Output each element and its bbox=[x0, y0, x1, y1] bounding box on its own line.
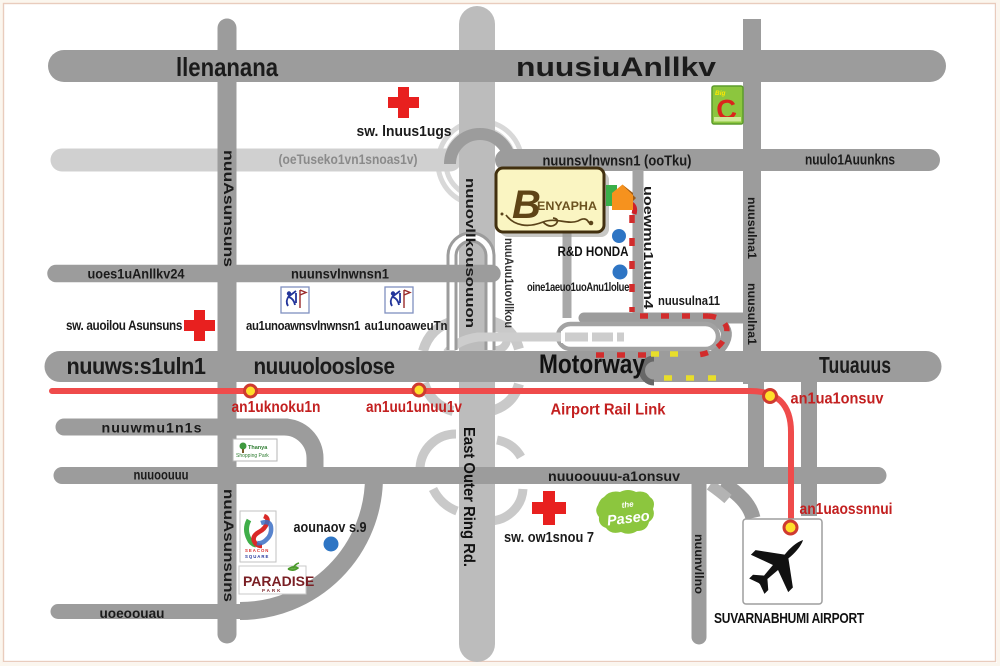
svg-text:nuuAuu1uovllkou: nuuAuu1uovllkou bbox=[502, 238, 514, 328]
svg-text:an1uaossnnui: an1uaossnnui bbox=[800, 501, 893, 518]
svg-text:nuuws:s1uln1: nuuws:s1uln1 bbox=[67, 353, 207, 379]
svg-text:(oeTuseko1vn1snoas1v): (oeTuseko1vn1snoas1v) bbox=[279, 152, 418, 167]
svg-text:Airport Rail Link: Airport Rail Link bbox=[551, 402, 666, 419]
svg-text:nuusulna11: nuusulna11 bbox=[658, 293, 720, 308]
svg-text:PARADISE: PARADISE bbox=[243, 573, 314, 589]
svg-text:sw. lnuus1ugs: sw. lnuus1ugs bbox=[357, 123, 452, 140]
svg-text:Tuuauus: Tuuauus bbox=[819, 352, 891, 378]
svg-text:au1unoaweuTn: au1unoaweuTn bbox=[365, 319, 448, 333]
svg-text:nuunsvlnwnsn1 (ooTku): nuunsvlnwnsn1 (ooTku) bbox=[543, 153, 692, 170]
svg-text:aounaov s.9: aounaov s.9 bbox=[294, 519, 367, 536]
svg-text:nuuuolooslose: nuuuolooslose bbox=[254, 353, 395, 379]
svg-text:Motorway: Motorway bbox=[539, 349, 645, 379]
svg-text:an1uu1unuu1v: an1uu1unuu1v bbox=[366, 399, 462, 416]
svg-text:nuuoouuu: nuuoouuu bbox=[134, 467, 189, 483]
svg-text:an1ua1onsuv: an1ua1onsuv bbox=[791, 391, 884, 408]
svg-text:nuuovllkousouuon: nuuovllkousouuon bbox=[463, 178, 478, 328]
svg-text:SUVARNABHUMI AIRPORT: SUVARNABHUMI AIRPORT bbox=[714, 610, 864, 627]
svg-text:SQUARE: SQUARE bbox=[245, 554, 269, 559]
svg-text:nuuoouuu-a1onsuv: nuuoouuu-a1onsuv bbox=[548, 468, 680, 484]
svg-text:nuuAsunsuns: nuuAsunsuns bbox=[221, 150, 237, 267]
svg-text:sw. auoilou Asunsuns: sw. auoilou Asunsuns bbox=[66, 318, 182, 333]
svg-text:uoewmu1uuun4: uoewmu1uuun4 bbox=[641, 186, 656, 310]
svg-text:East Outer Ring Rd.: East Outer Ring Rd. bbox=[460, 427, 477, 567]
svg-text:nuunsvlnwnsn1: nuunsvlnwnsn1 bbox=[291, 267, 389, 282]
svg-text:nuulo1Auunkns: nuulo1Auunkns bbox=[805, 153, 895, 169]
svg-text:ENYAPHA: ENYAPHA bbox=[537, 199, 597, 213]
svg-text:an1uknoku1n: an1uknoku1n bbox=[232, 399, 321, 416]
svg-text:llenanana: llenanana bbox=[176, 52, 278, 82]
svg-text:oine1aeuo1uoAnu1lolue: oine1aeuo1uoAnu1lolue bbox=[527, 282, 629, 294]
svg-text:PARK: PARK bbox=[262, 588, 282, 593]
svg-text:nuuwmu1n1s: nuuwmu1n1s bbox=[102, 420, 203, 436]
svg-text:R&D HONDA: R&D HONDA bbox=[558, 244, 629, 259]
svg-text:nuusulna1: nuusulna1 bbox=[745, 197, 759, 259]
svg-text:uoes1uAnllkv24: uoes1uAnllkv24 bbox=[88, 267, 185, 282]
svg-text:nuusulna1: nuusulna1 bbox=[745, 283, 759, 345]
svg-text:nuusiuAnllkv: nuusiuAnllkv bbox=[516, 52, 716, 82]
svg-text:au1unoawnsvlnwnsn1: au1unoawnsvlnwnsn1 bbox=[246, 319, 360, 333]
svg-text:SEACON: SEACON bbox=[245, 548, 269, 553]
svg-text:the: the bbox=[621, 499, 635, 510]
svg-text:sw. ow1snou 7: sw. ow1snou 7 bbox=[504, 529, 594, 546]
svg-text:nuuAsunsuns: nuuAsunsuns bbox=[221, 489, 237, 602]
svg-text:nuunvllno: nuunvllno bbox=[692, 534, 706, 594]
svg-text:Thanya: Thanya bbox=[248, 445, 268, 451]
svg-text:Shopping Park: Shopping Park bbox=[236, 453, 269, 459]
svg-text:uoeoouau: uoeoouau bbox=[100, 606, 165, 621]
